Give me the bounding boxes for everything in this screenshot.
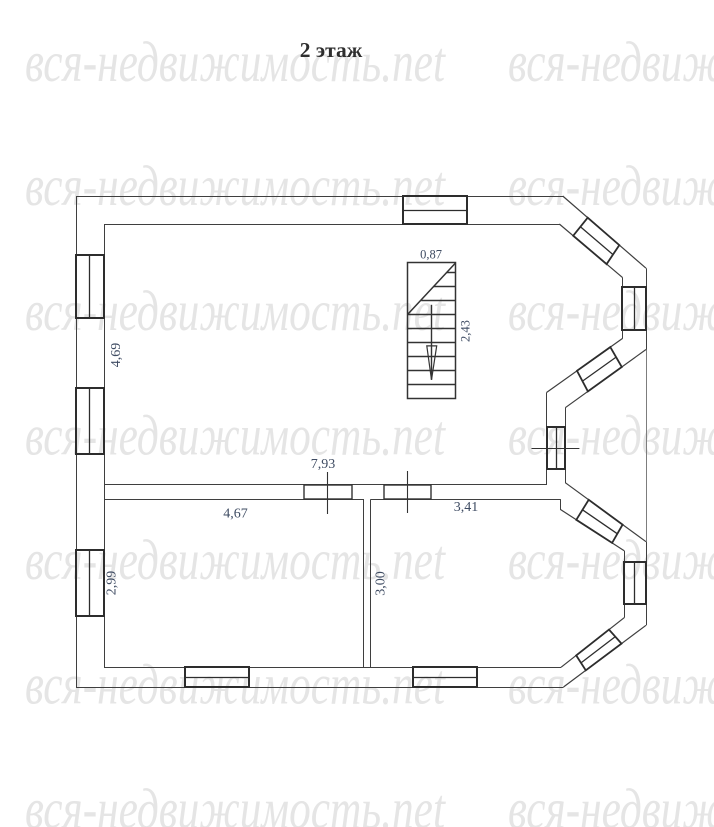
svg-text:вся-недвижимость.net: вся-недвижимость.net xyxy=(25,155,446,218)
svg-text:4,67: 4,67 xyxy=(223,507,248,522)
svg-text:3,00: 3,00 xyxy=(374,571,389,596)
svg-text:вся-недвижимость.net: вся-недвижимость.net xyxy=(508,405,714,468)
svg-text:7,93: 7,93 xyxy=(311,457,336,472)
svg-text:вся-недвижимость.net: вся-недвижимость.net xyxy=(508,280,714,343)
svg-text:вся-недвижимость.net: вся-недвижимость.net xyxy=(25,280,446,343)
svg-text:2,43: 2,43 xyxy=(459,320,473,342)
svg-text:вся-недвижимость.net: вся-недвижимость.net xyxy=(25,654,446,717)
svg-text:2 этаж: 2 этаж xyxy=(300,38,363,62)
svg-text:вся-недвижимость.net: вся-недвижимость.net xyxy=(508,155,714,218)
svg-text:4,69: 4,69 xyxy=(109,343,124,368)
svg-text:0,87: 0,87 xyxy=(420,248,442,262)
svg-text:вся-недвижимость.net: вся-недвижимость.net xyxy=(508,31,714,94)
svg-text:вся-недвижимость.net: вся-недвижимость.net xyxy=(508,529,714,592)
svg-text:вся-недвижимость.net: вся-недвижимость.net xyxy=(508,654,714,717)
svg-text:вся-недвижимость.net: вся-недвижимость.net xyxy=(508,778,714,827)
svg-text:вся-недвижимость.net: вся-недвижимость.net xyxy=(25,778,446,827)
svg-text:вся-недвижимость.net: вся-недвижимость.net xyxy=(25,31,446,94)
svg-text:2,99: 2,99 xyxy=(105,571,120,596)
svg-text:3,41: 3,41 xyxy=(454,500,479,515)
svg-text:вся-недвижимость.net: вся-недвижимость.net xyxy=(25,405,446,468)
